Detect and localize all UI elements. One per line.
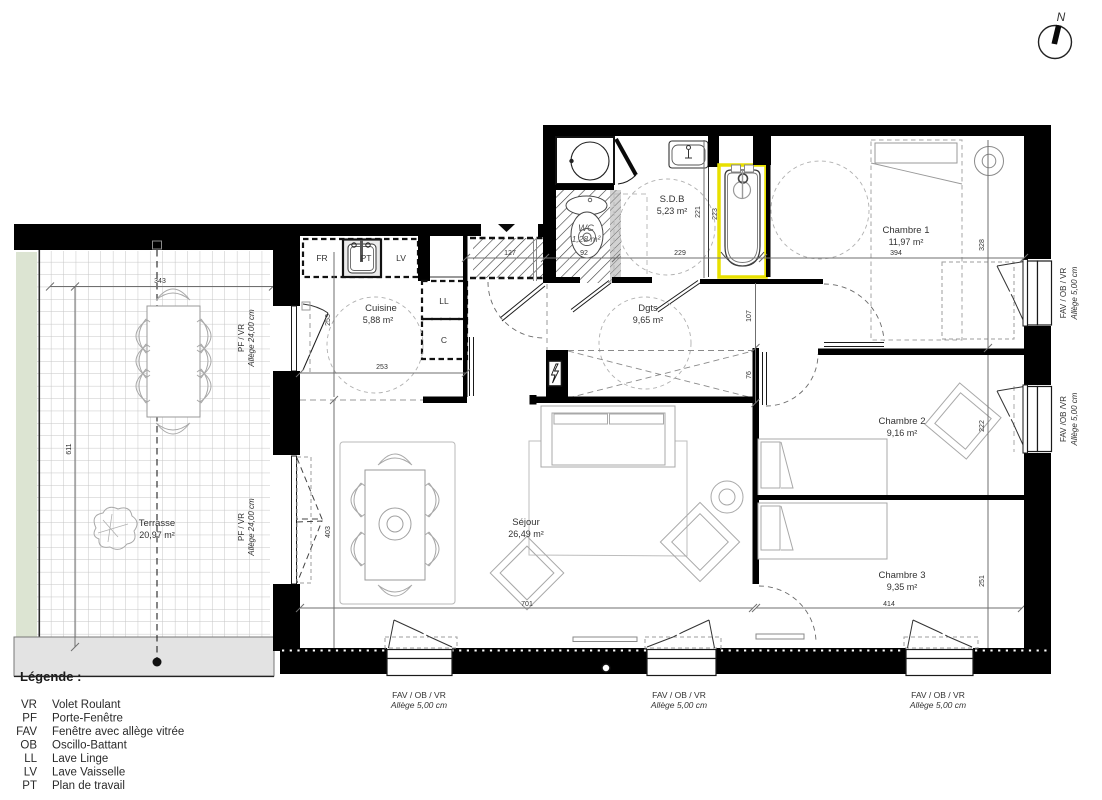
svg-text:328: 328 <box>979 239 986 251</box>
svg-text:C: C <box>441 335 447 345</box>
svg-text:PF: PF <box>22 713 37 725</box>
svg-text:Allège 24,00 cm: Allège 24,00 cm <box>247 498 256 557</box>
svg-text:253: 253 <box>376 364 388 371</box>
svg-text:FAV / OB / VR: FAV / OB / VR <box>392 690 446 700</box>
svg-text:OB: OB <box>20 740 37 752</box>
svg-text:FAV / OB / VR: FAV / OB / VR <box>911 690 965 700</box>
svg-text:Allège 5,00 cm: Allège 5,00 cm <box>650 700 707 710</box>
svg-text:PT: PT <box>361 253 372 263</box>
svg-text:414: 414 <box>883 601 895 608</box>
svg-text:5,23 m²: 5,23 m² <box>657 206 688 216</box>
svg-text:Allège 5,00 cm: Allège 5,00 cm <box>1070 392 1079 446</box>
svg-text:FAV / OB / VR: FAV / OB / VR <box>652 690 706 700</box>
svg-text:PF / VR: PF / VR <box>237 513 246 541</box>
svg-text:FAV / OB / VR: FAV / OB / VR <box>1059 268 1068 319</box>
svg-text:FAV /OB /VR: FAV /OB /VR <box>1059 396 1068 442</box>
svg-text:9,35 m²: 9,35 m² <box>887 582 918 592</box>
svg-text:5,88 m²: 5,88 m² <box>363 315 394 325</box>
svg-text:Terrasse: Terrasse <box>139 518 175 529</box>
svg-text:251: 251 <box>979 575 986 587</box>
svg-text:Allège 5,00 cm: Allège 5,00 cm <box>1070 266 1079 320</box>
svg-text:76: 76 <box>746 371 753 379</box>
svg-text:11,97 m²: 11,97 m² <box>889 237 924 247</box>
svg-text:LV: LV <box>396 253 406 263</box>
svg-text:Oscillo-Battant: Oscillo-Battant <box>52 740 128 752</box>
svg-text:229: 229 <box>674 250 686 257</box>
svg-text:Chambre 1: Chambre 1 <box>883 225 930 236</box>
svg-text:WC: WC <box>578 223 594 234</box>
svg-text:FR: FR <box>316 253 327 263</box>
svg-text:127: 127 <box>504 250 516 257</box>
svg-text:Porte-Fenêtre: Porte-Fenêtre <box>52 713 123 725</box>
svg-text:Chambre 3: Chambre 3 <box>879 570 926 581</box>
svg-text:PF / VR: PF / VR <box>237 324 246 352</box>
svg-text:26,49 m²: 26,49 m² <box>508 529 544 539</box>
svg-text:403: 403 <box>325 526 332 538</box>
svg-text:Cuisine: Cuisine <box>365 303 397 314</box>
svg-text:221: 221 <box>695 206 702 218</box>
svg-text:Lave Linge: Lave Linge <box>52 753 108 765</box>
svg-text:Dgts: Dgts <box>638 303 658 314</box>
svg-text:394: 394 <box>890 250 902 257</box>
svg-text:92: 92 <box>580 250 588 257</box>
svg-text:222: 222 <box>979 420 986 432</box>
svg-text:611: 611 <box>66 443 73 454</box>
svg-text:9,65 m²: 9,65 m² <box>633 315 664 325</box>
svg-text:Plan de travail: Plan de travail <box>52 780 125 792</box>
svg-text:9,16 m²: 9,16 m² <box>887 428 918 438</box>
svg-text:S.D.B: S.D.B <box>660 194 685 205</box>
svg-text:LV: LV <box>24 767 38 779</box>
svg-text:107: 107 <box>746 310 753 322</box>
svg-text:PT: PT <box>22 780 37 792</box>
svg-text:253: 253 <box>325 314 332 326</box>
svg-text:LL: LL <box>439 296 449 306</box>
svg-text:Allège 5,00 cm: Allège 5,00 cm <box>909 700 966 710</box>
svg-text:20,97 m²: 20,97 m² <box>139 530 175 540</box>
svg-text:LL: LL <box>24 753 37 765</box>
svg-text:Lave Vaisselle: Lave Vaisselle <box>52 767 125 779</box>
svg-text:Allège 24,00 cm: Allège 24,00 cm <box>247 309 256 368</box>
svg-text:N: N <box>1057 10 1066 24</box>
svg-text:Chambre 2: Chambre 2 <box>879 416 926 427</box>
svg-text:VR: VR <box>21 699 37 711</box>
svg-text:Fenêtre avec allège vitrée: Fenêtre avec allège vitrée <box>52 726 184 738</box>
svg-text:223: 223 <box>712 208 719 220</box>
svg-text:Volet Roulant: Volet Roulant <box>52 699 121 711</box>
svg-text:343: 343 <box>154 278 166 285</box>
svg-text:Séjour: Séjour <box>512 517 539 528</box>
svg-text:Allège 5,00 cm: Allège 5,00 cm <box>390 700 447 710</box>
svg-text:701: 701 <box>521 601 533 608</box>
svg-text:1,28 m²: 1,28 m² <box>572 234 602 244</box>
svg-text:FAV: FAV <box>16 726 37 738</box>
